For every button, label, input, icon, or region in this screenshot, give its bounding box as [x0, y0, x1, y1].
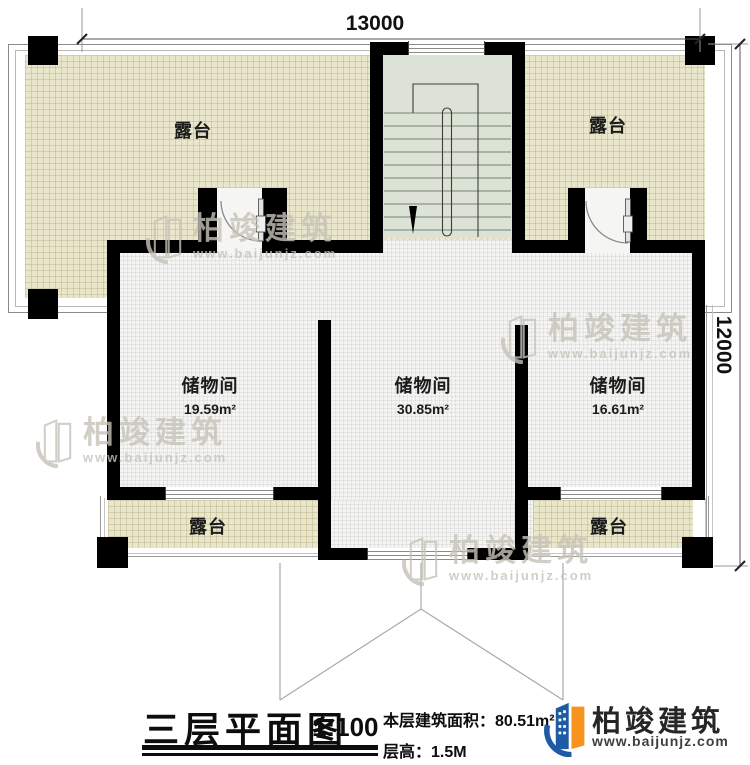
partition-left-middle [318, 320, 331, 560]
stair-wall-top-right [483, 42, 512, 55]
label-terrace-bottom-left: 露台 [173, 513, 243, 539]
protrusion-bottom-wall-1 [331, 548, 367, 560]
stairwell [383, 55, 512, 238]
bottom-wall-right-2 [660, 487, 705, 500]
top-wall-4 [647, 240, 705, 253]
column-top-right [685, 36, 715, 65]
watermark-url: www.baijunjz.com [449, 568, 593, 583]
floor-area-line: 本层建筑面积：80.51m² [383, 707, 555, 731]
watermark-text: 柏竣建筑 www.baijunjz.com [83, 417, 227, 465]
watermark-name: 柏竣建筑 [548, 313, 692, 344]
floor-height-value: 1.5M [431, 744, 467, 761]
title-underline-thin [142, 753, 378, 756]
stair-wall-left [370, 42, 383, 253]
room-name: 储物间 [150, 372, 270, 398]
watermark-url: www.baijunjz.com [83, 450, 227, 465]
right-dimension-label: 12000 [711, 314, 735, 376]
watermark-right: 柏竣建筑 www.baijunjz.com [495, 310, 692, 364]
watermark-name: 柏竣建筑 [83, 417, 227, 448]
top-dimension-label: 13000 [338, 12, 412, 36]
column-mid-left [28, 289, 58, 319]
room-name: 储物间 [363, 372, 483, 398]
right-exterior-wall [692, 253, 705, 500]
watermark-left: 柏竣建筑 www.baijunjz.com [30, 414, 227, 468]
watermark-building-icon [30, 414, 76, 468]
right-door-jamb-right [630, 188, 647, 253]
watermark-name: 柏竣建筑 [449, 535, 593, 566]
brand-website: www.baijunjz.com [592, 733, 729, 749]
right-door-jamb-left [568, 188, 585, 253]
label-storage-middle: 储物间 30.85m² [363, 372, 483, 417]
right-room-window [560, 487, 662, 500]
column-bottom-right [682, 537, 713, 568]
watermark-text: 柏竣建筑 www.baijunjz.com [193, 213, 337, 261]
column-top-left [28, 36, 58, 65]
right-door-opening [585, 188, 630, 253]
watermark-building-icon [396, 532, 442, 586]
stair-wall-top-left [383, 42, 408, 55]
column-bottom-left [97, 537, 128, 568]
drawing-scale: 1:100 [312, 712, 379, 743]
room-area: 16.61m² [558, 401, 678, 417]
floor-area-label: 本层建筑面积： [383, 713, 495, 730]
floor-plan-sheet: { "dimensions": { "top": "13000", "right… [0, 0, 750, 765]
watermark-building-icon [140, 210, 186, 264]
stair-top-window [408, 41, 485, 55]
room-name: 储物间 [558, 372, 678, 398]
watermark-top-center: 柏竣建筑 www.baijunjz.com [140, 210, 337, 264]
label-storage-left: 储物间 19.59m² [150, 372, 270, 417]
label-terrace-top-right: 露台 [573, 112, 643, 138]
floor-height-line: 层高：1.5M [383, 738, 467, 762]
room-area: 30.85m² [363, 401, 483, 417]
floor-height-label: 层高： [383, 744, 431, 761]
watermark-name: 柏竣建筑 [193, 213, 337, 244]
label-storage-right: 储物间 16.61m² [558, 372, 678, 417]
stair-wall-right [512, 42, 525, 253]
watermark-url: www.baijunjz.com [193, 246, 337, 261]
label-terrace-top-left: 露台 [158, 117, 228, 143]
left-room-window [165, 487, 274, 500]
bottom-wall-left-1 [107, 487, 165, 500]
title-underline-thick [142, 745, 378, 750]
top-wall-3 [525, 240, 568, 253]
watermark-url: www.baijunjz.com [548, 346, 692, 361]
watermark-building-icon [495, 310, 541, 364]
watermark-bottom-center: 柏竣建筑 www.baijunjz.com [396, 532, 593, 586]
watermark-text: 柏竣建筑 www.baijunjz.com [548, 313, 692, 361]
watermark-text: 柏竣建筑 www.baijunjz.com [449, 535, 593, 583]
brand-logo-icon [541, 695, 589, 757]
